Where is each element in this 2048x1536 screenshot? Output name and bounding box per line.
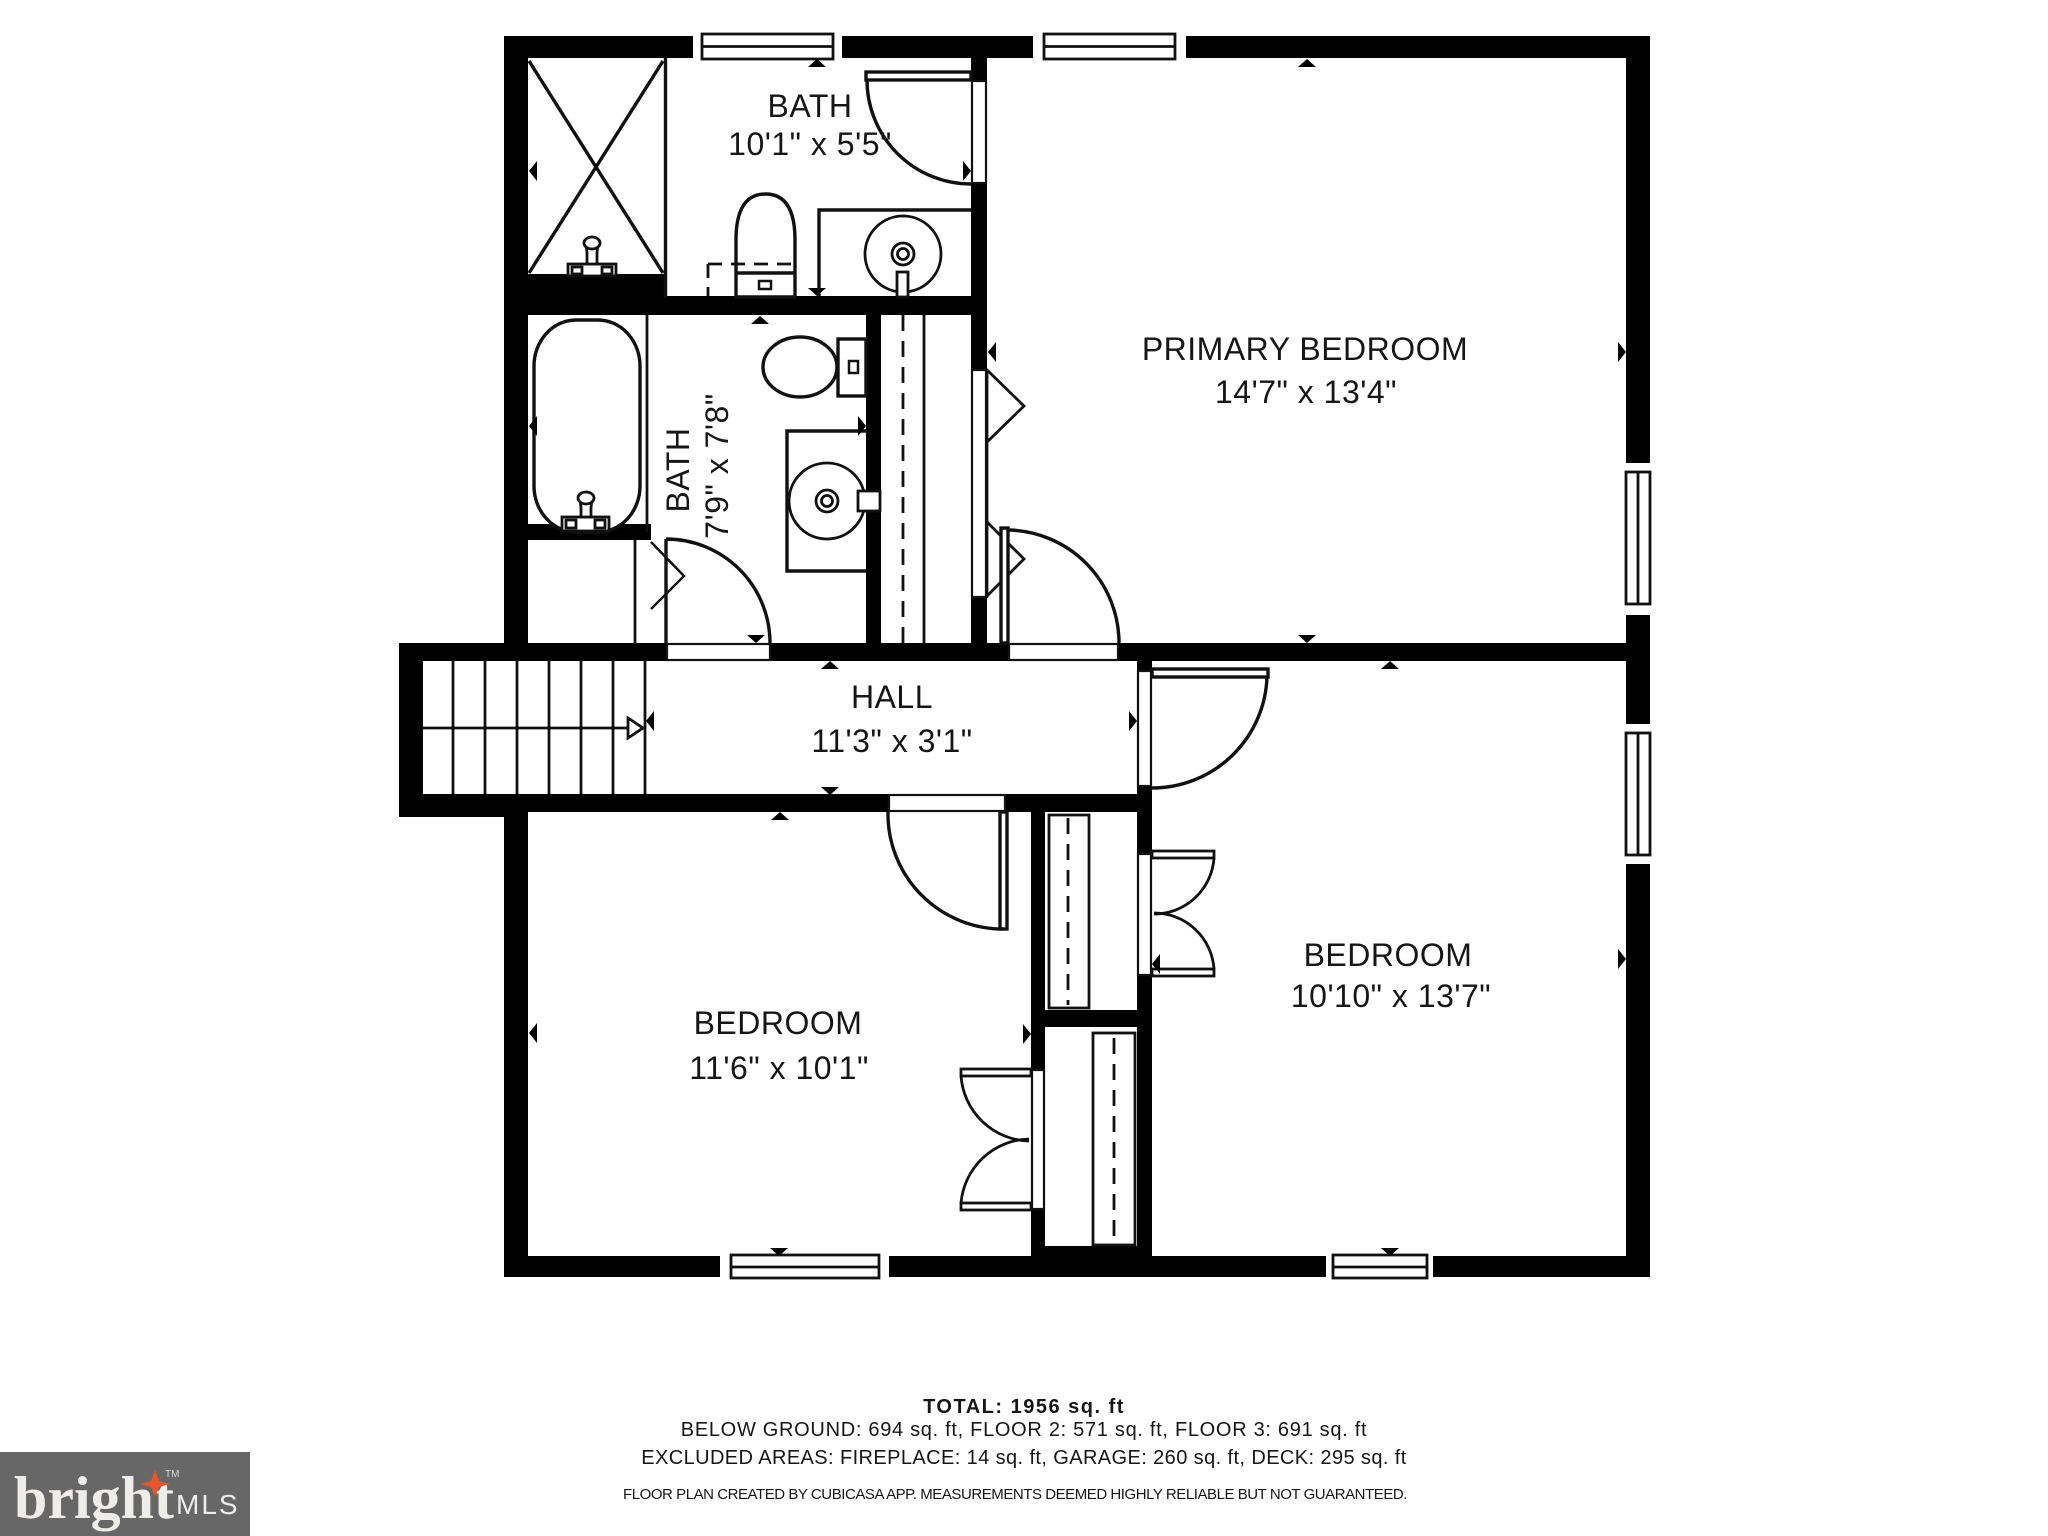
svg-text:BEDROOM: BEDROOM <box>1304 937 1473 973</box>
svg-text:BEDROOM: BEDROOM <box>694 1005 863 1041</box>
svg-text:14'7" x 13'4": 14'7" x 13'4" <box>1215 374 1397 410</box>
svg-text:bright: bright <box>14 1465 174 1531</box>
svg-text:TOTAL: 1956 sq. ft: TOTAL: 1956 sq. ft <box>923 1396 1125 1418</box>
svg-text:BELOW GROUND: 694 sq. ft, FLOO: BELOW GROUND: 694 sq. ft, FLOOR 2: 571 s… <box>681 1419 1367 1441</box>
svg-text:10'1" x 5'5": 10'1" x 5'5" <box>728 126 892 162</box>
svg-text:PRIMARY BEDROOM: PRIMARY BEDROOM <box>1142 331 1468 367</box>
svg-text:FLOOR PLAN CREATED BY CUBICASA: FLOOR PLAN CREATED BY CUBICASA APP. MEAS… <box>623 1486 1407 1503</box>
svg-text:10'10" x 13'7": 10'10" x 13'7" <box>1291 978 1491 1014</box>
svg-text:11'3" x 3'1": 11'3" x 3'1" <box>811 723 972 759</box>
svg-text:EXCLUDED AREAS: FIREPLACE: 14: EXCLUDED AREAS: FIREPLACE: 14 sq. ft, GA… <box>641 1447 1406 1469</box>
svg-text:BATH: BATH <box>768 88 853 124</box>
svg-text:HALL: HALL <box>851 679 933 715</box>
svg-text:MLS: MLS <box>176 1489 240 1520</box>
svg-text:TM: TM <box>165 1469 179 1480</box>
svg-text:11'6" x 10'1": 11'6" x 10'1" <box>689 1050 869 1086</box>
svg-text:BATH: BATH <box>660 428 696 513</box>
svg-text:7'9" x 7'8": 7'9" x 7'8" <box>699 393 735 538</box>
